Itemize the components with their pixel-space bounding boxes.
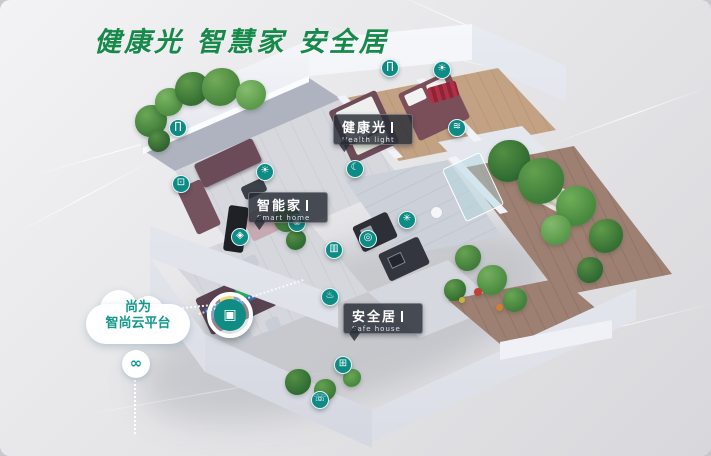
link-icon[interactable]: ∞ xyxy=(122,350,150,378)
fan-icon[interactable]: ✳ xyxy=(398,211,416,229)
label-smart-home-zh: 智能家 xyxy=(257,200,302,214)
sleep-mode-icon[interactable]: ☾ xyxy=(346,160,364,178)
water-icon[interactable]: ≋ xyxy=(448,119,466,137)
doorbell-icon[interactable]: ☏ xyxy=(311,391,329,409)
text-cursor xyxy=(401,311,403,322)
washbasin xyxy=(430,206,443,219)
label-health-light-en: Health light xyxy=(342,136,406,144)
smart-gateway-icon[interactable]: ▣ xyxy=(207,292,253,338)
blinds-icon[interactable]: ▥ xyxy=(325,241,343,259)
label-health-light-zh: 健康光 xyxy=(342,122,387,136)
ceiling-light-icon[interactable]: ☀ xyxy=(433,61,451,79)
tv-icon[interactable]: ⊡ xyxy=(172,175,190,193)
label-health-light: 健康光 Health light xyxy=(333,114,413,145)
light-streak xyxy=(10,156,161,237)
label-safe-house: 安全居 Safe house xyxy=(343,303,423,334)
curtain-icon[interactable]: ∏ xyxy=(169,119,187,137)
cloud-brand: 尚为 xyxy=(86,300,190,316)
link-glyph: ∞ xyxy=(130,354,143,372)
curtain-icon[interactable]: ∏ xyxy=(381,59,399,77)
label-smart-home-en: Smart home xyxy=(257,214,321,222)
label-smart-home: 智能家 Smart home xyxy=(248,192,328,223)
faucet-icon[interactable]: ♨ xyxy=(321,288,339,306)
text-cursor xyxy=(391,122,393,133)
cloud-platform-name: 尚为 智尚云平台 xyxy=(86,300,190,332)
gas-sensor-icon[interactable]: ◎ xyxy=(359,230,377,248)
light-streak xyxy=(550,86,710,145)
poster-canvas: 尚为 智尚云平台 ∞ ▣ ∏⊡☀◉◈∏☀☾✳◎▥≋♨⊞☏ 健康光 Health … xyxy=(0,0,711,456)
cloud-platform-label: 智尚云平台 xyxy=(86,316,190,332)
light-icon[interactable]: ☀ xyxy=(256,163,274,181)
page-title: 健康光 智慧家 安全居 xyxy=(94,20,389,59)
text-cursor xyxy=(306,200,308,211)
socket-icon[interactable]: ⊞ xyxy=(334,356,352,374)
label-safe-house-zh: 安全居 xyxy=(352,311,397,325)
cloud-platform: 尚为 智尚云平台 xyxy=(86,286,190,348)
cloud-connector xyxy=(134,380,136,434)
location-pin-icon[interactable]: ◈ xyxy=(231,228,249,246)
label-safe-house-en: Safe house xyxy=(352,325,416,333)
gateway-glyph: ▣ xyxy=(214,299,246,331)
